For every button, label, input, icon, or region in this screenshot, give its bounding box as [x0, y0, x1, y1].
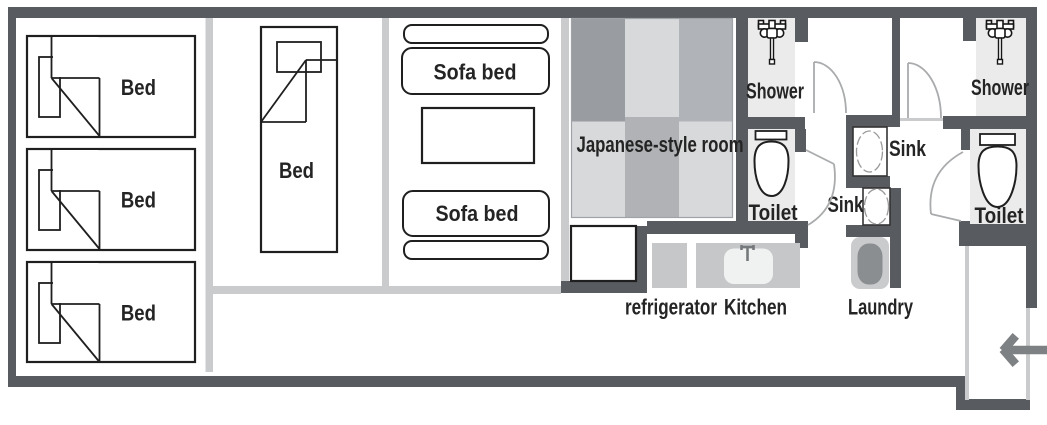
svg-text:Toilet: Toilet: [749, 200, 799, 225]
svg-text:Bed: Bed: [279, 158, 314, 183]
svg-text:refrigerator: refrigerator: [625, 295, 717, 320]
svg-text:Sofa bed: Sofa bed: [436, 201, 519, 226]
svg-text:Bed: Bed: [121, 75, 156, 100]
svg-text:Kitchen: Kitchen: [724, 295, 787, 320]
svg-text:Laundry: Laundry: [848, 295, 914, 320]
svg-text:Bed: Bed: [121, 301, 156, 326]
svg-text:Shower: Shower: [971, 75, 1029, 100]
svg-text:Bed: Bed: [121, 188, 156, 213]
svg-text:Japanese-style room: Japanese-style room: [577, 132, 744, 157]
svg-text:Shower: Shower: [746, 79, 804, 104]
svg-text:Sink: Sink: [889, 136, 927, 161]
svg-text:Sofa bed: Sofa bed: [434, 60, 517, 85]
svg-text:Toilet: Toilet: [975, 203, 1025, 228]
